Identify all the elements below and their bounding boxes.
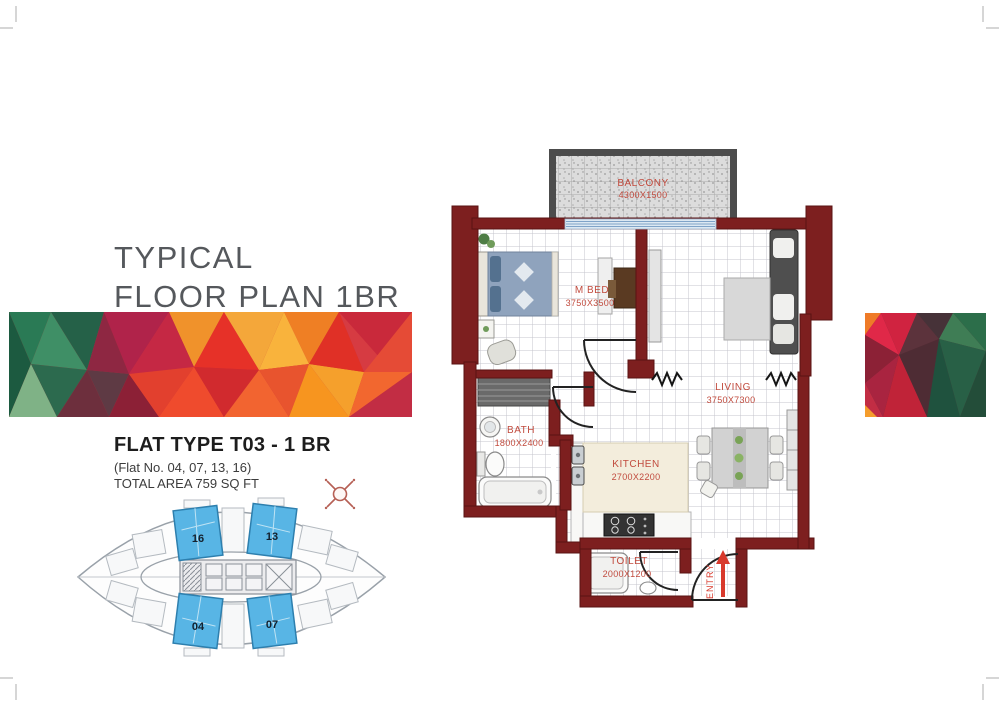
toilet-label: TOILET bbox=[610, 556, 648, 567]
bath-label: BATH bbox=[507, 425, 535, 436]
page-title-line2: FLOOR PLAN 1BR bbox=[114, 277, 400, 316]
living-dims: 3750X7300 bbox=[707, 395, 756, 405]
flat-numbers: (Flat No. 04, 07, 13, 16) bbox=[114, 460, 331, 476]
floor-plan-graphic: 16 13 04 07 bbox=[0, 0, 999, 706]
page: 16 13 04 07 bbox=[0, 0, 999, 706]
unit-plan: BALCONY 4300X1500 M BED 3750X3500 LIVING… bbox=[452, 149, 832, 607]
right-banner-graphic bbox=[865, 313, 986, 417]
key-plan-unit-04[interactable]: 04 bbox=[173, 594, 223, 649]
kitchen-dims: 2700X2200 bbox=[612, 472, 661, 482]
key-plan: 16 13 04 07 bbox=[78, 498, 385, 656]
unit-number: 07 bbox=[266, 619, 278, 631]
unit-number: 13 bbox=[266, 531, 278, 543]
kitchen-counters bbox=[571, 443, 691, 542]
balcony-slider bbox=[565, 219, 716, 229]
key-plan-unit-16[interactable]: 16 bbox=[173, 506, 223, 561]
key-plan-unit-07[interactable]: 07 bbox=[247, 594, 297, 649]
flat-total-area: TOTAL AREA 759 SQ FT bbox=[114, 476, 331, 492]
kitchen-label: KITCHEN bbox=[612, 459, 659, 470]
unit-number: 04 bbox=[192, 621, 205, 633]
page-title: TYPICAL FLOOR PLAN 1BR bbox=[114, 238, 400, 316]
left-banner-graphic bbox=[9, 312, 412, 417]
balcony-label: BALCONY bbox=[617, 178, 668, 189]
key-plan-unit-13[interactable]: 13 bbox=[247, 504, 297, 559]
flat-info: FLAT TYPE T03 - 1 BR (Flat No. 04, 07, 1… bbox=[114, 434, 331, 492]
balcony-dims: 4300X1500 bbox=[619, 190, 668, 200]
toilet-dims: 2000X1200 bbox=[603, 569, 652, 579]
living-label: LIVING bbox=[715, 382, 751, 393]
unit-number: 16 bbox=[192, 533, 204, 545]
mbed-label: M BED bbox=[575, 285, 609, 296]
flat-type-heading: FLAT TYPE T03 - 1 BR bbox=[114, 434, 331, 457]
bath-dims: 1800X2400 bbox=[495, 438, 544, 448]
entry-label: ENTRY bbox=[705, 564, 715, 599]
mbed-dims: 3750X3500 bbox=[566, 298, 615, 308]
page-title-line1: TYPICAL bbox=[114, 238, 400, 277]
